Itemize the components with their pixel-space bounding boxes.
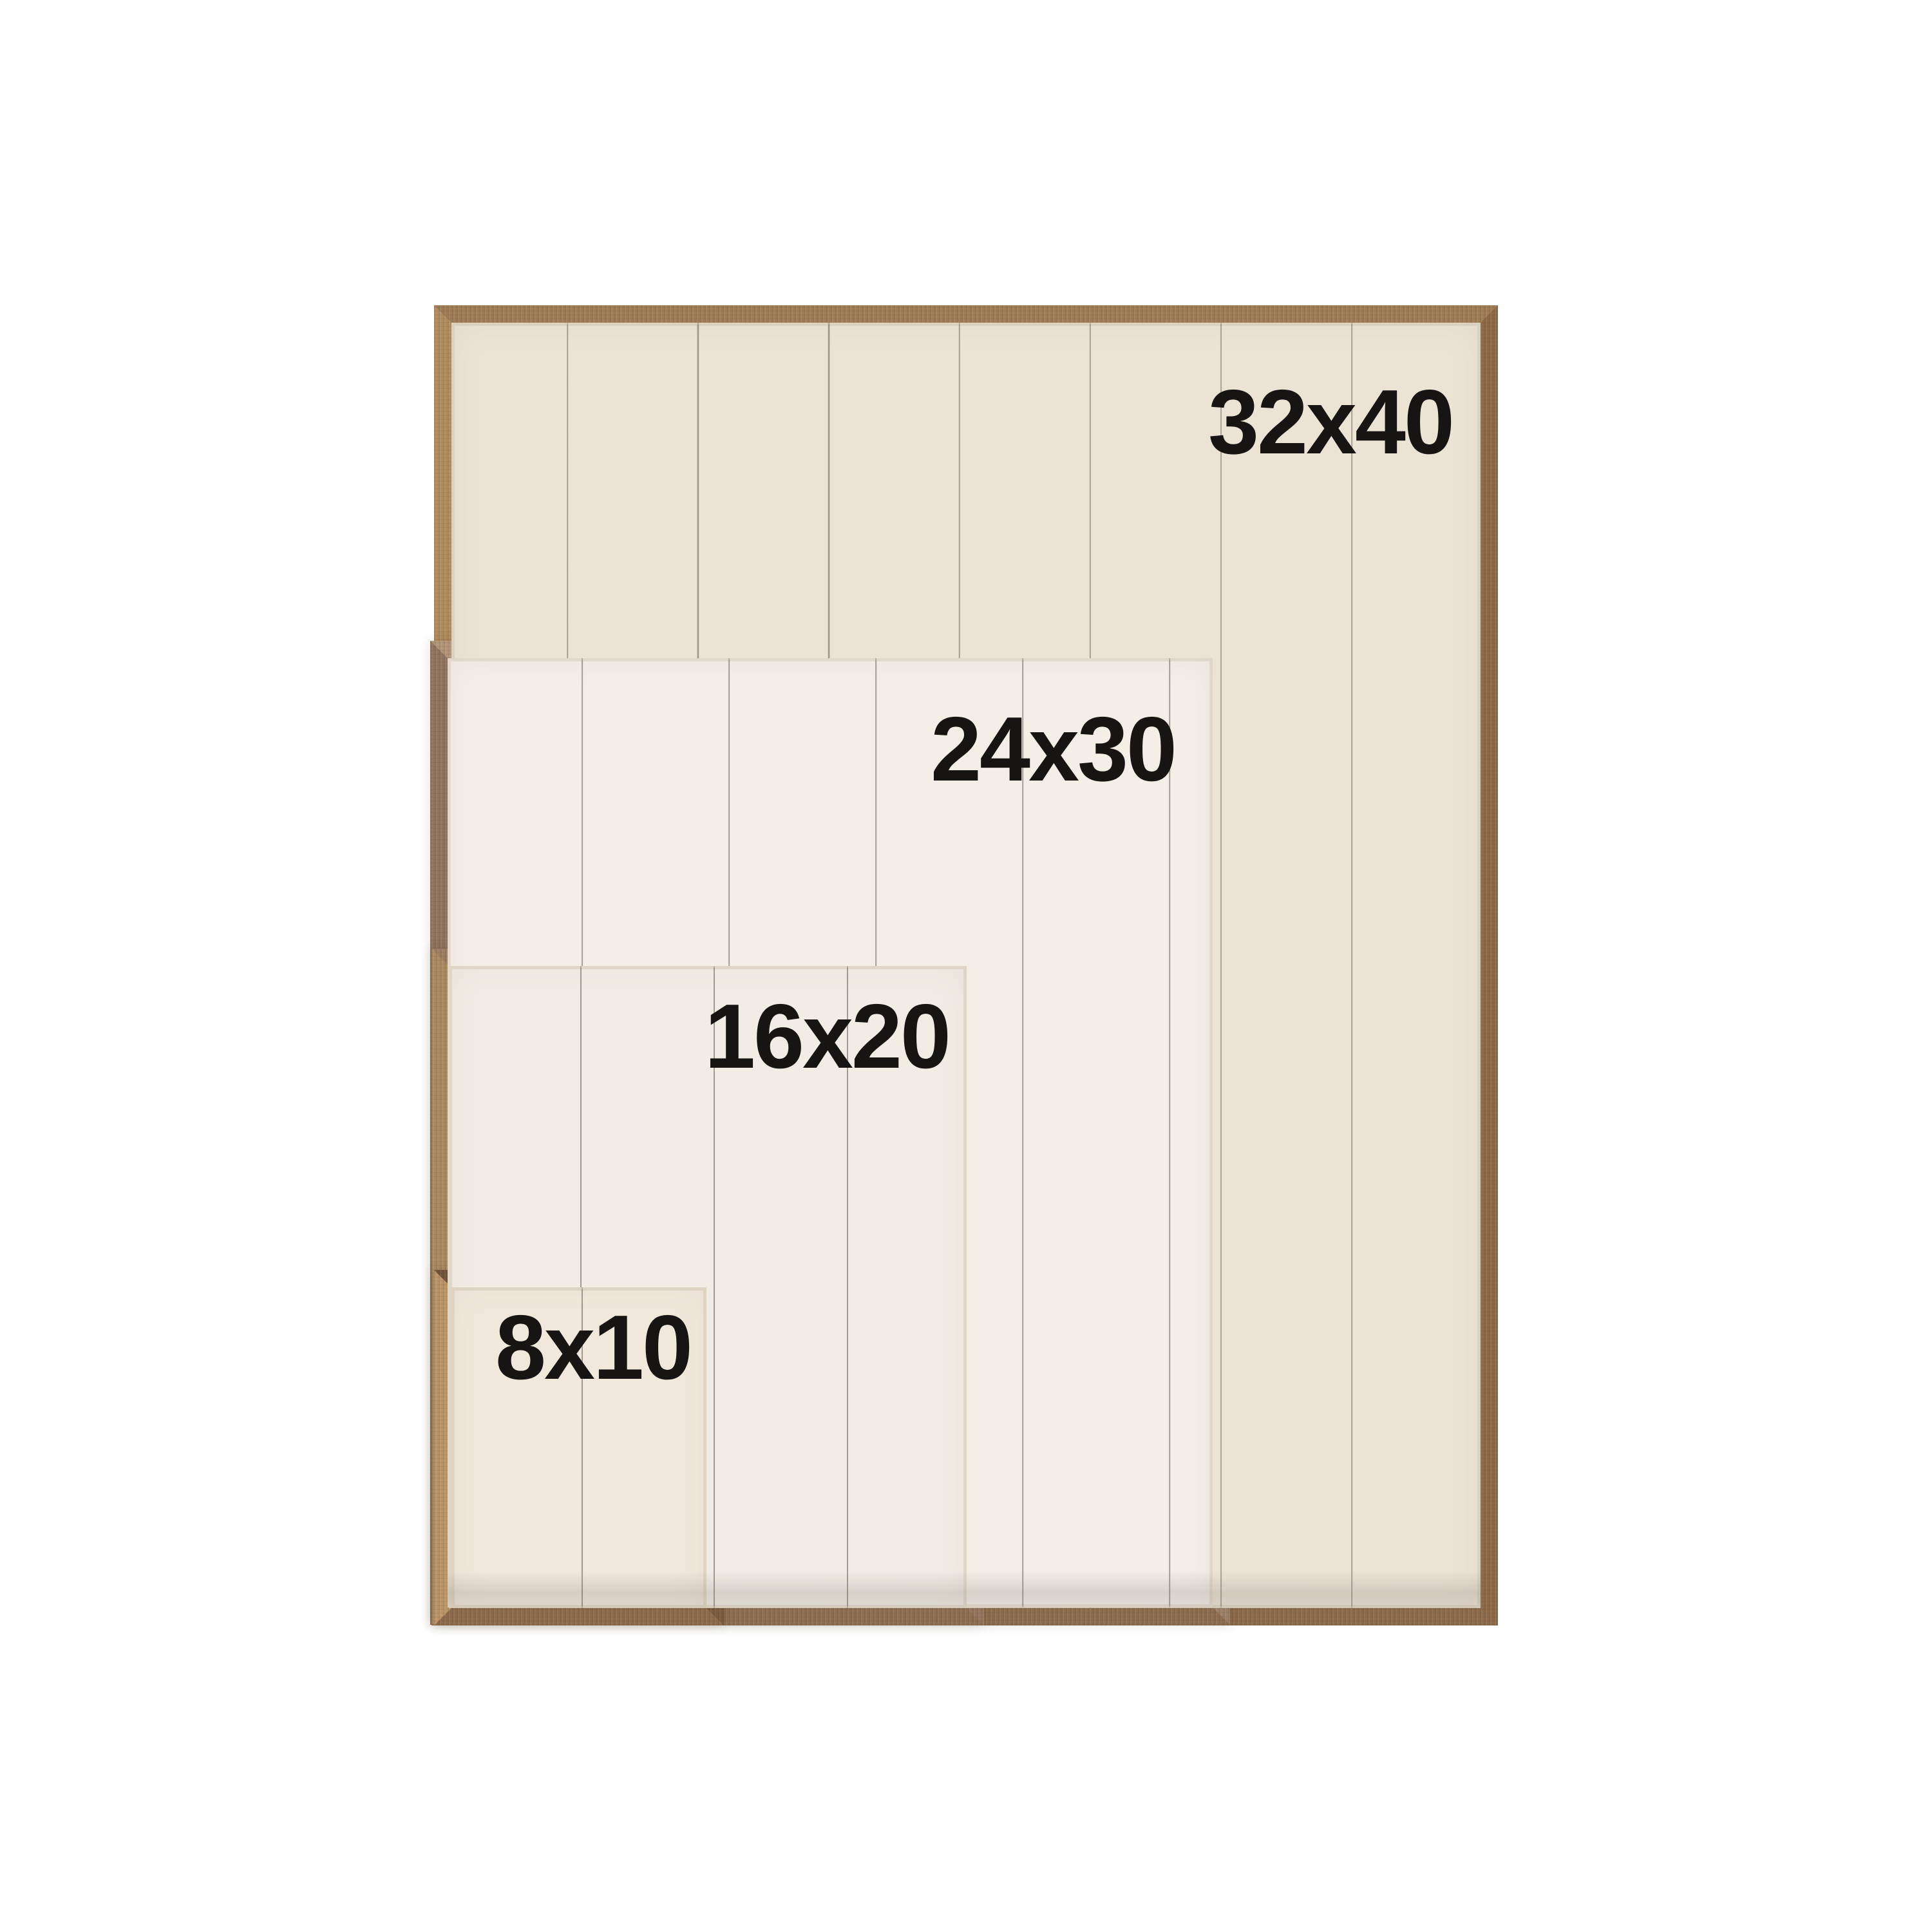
size-label-16x20: 16x20 xyxy=(705,991,949,1083)
glass-reflection xyxy=(451,1571,706,1608)
frame-size-chart: 32x4024x3016x208x10 xyxy=(0,0,1932,1932)
size-label-8x10: 8x10 xyxy=(495,1302,691,1394)
size-label-24x30: 24x30 xyxy=(931,704,1175,795)
size-label-32x40: 32x40 xyxy=(1208,377,1453,468)
